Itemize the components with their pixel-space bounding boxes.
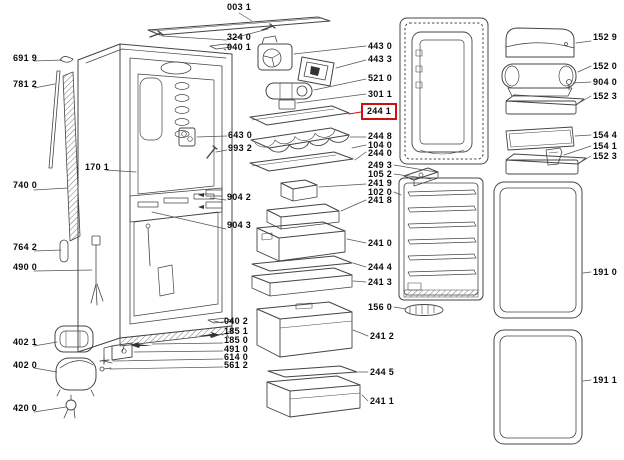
part-shelf-frame (506, 127, 574, 150)
part-label-241-2[interactable]: 241 2 (370, 332, 394, 341)
part-label-904-0[interactable]: 904 0 (593, 78, 617, 87)
part-label-152-0[interactable]: 152 0 (593, 62, 617, 71)
part-label-904-3[interactable]: 904 3 (227, 221, 251, 230)
part-compressor (56, 358, 96, 396)
part-label-040-2[interactable]: 040 2 (224, 317, 248, 326)
part-label-244-4[interactable]: 244 4 (368, 263, 392, 272)
part-label-156-0[interactable]: 156 0 (368, 303, 392, 312)
parts-diagram-drawing (0, 0, 624, 460)
part-label-244-1-highlighted[interactable]: 244 1 (361, 103, 397, 120)
part-freezer-flap (268, 366, 357, 377)
part-label-993-2[interactable]: 993 2 (228, 144, 252, 153)
part-label-561-2[interactable]: 561 2 (224, 361, 248, 370)
part-hinge-screws (100, 358, 111, 371)
part-small-tray (281, 180, 317, 201)
part-fan-unit (258, 36, 292, 70)
part-label-740-0[interactable]: 740 0 (13, 181, 37, 190)
part-label-003-1[interactable]: 003 1 (227, 3, 251, 12)
part-label-152-3-upper[interactable]: 152 3 (593, 92, 617, 101)
part-door-shelf-upper (506, 95, 584, 114)
parts-diagram-page: 003 1 324 0 040 1 691 9 781 2 170 1 740 … (0, 0, 624, 460)
part-shallow-tray (252, 268, 352, 296)
part-shelf-rails (198, 190, 222, 209)
part-screw (207, 146, 217, 158)
part-label-241-0[interactable]: 241 0 (368, 239, 392, 248)
part-glass-shelf (250, 152, 353, 171)
part-label-191-1[interactable]: 191 1 (593, 376, 617, 385)
part-label-301-1[interactable]: 301 1 (368, 90, 392, 99)
part-label-152-9[interactable]: 152 9 (593, 33, 617, 42)
part-label-643-0[interactable]: 643 0 (228, 131, 252, 140)
part-cabinet (78, 44, 232, 352)
part-label-040-1[interactable]: 040 1 (227, 43, 251, 52)
part-label-402-1[interactable]: 402 1 (13, 338, 37, 347)
part-label-781-2[interactable]: 781 2 (13, 80, 37, 89)
part-label-241-3[interactable]: 241 3 (368, 278, 392, 287)
part-door-stop (60, 240, 68, 262)
part-pin (567, 80, 572, 91)
part-door-gasket-freezer (494, 330, 582, 444)
part-side-panel (63, 72, 80, 241)
part-label-244-5[interactable]: 244 5 (370, 368, 394, 377)
part-door-shelf-lower (506, 154, 586, 174)
part-label-521-0[interactable]: 521 0 (368, 74, 392, 83)
part-label-191-0[interactable]: 191 0 (593, 268, 617, 277)
part-glass-shelf-selected (250, 106, 349, 125)
part-label-402-0[interactable]: 402 0 (13, 361, 37, 370)
part-label-170-1[interactable]: 170 1 (85, 163, 109, 172)
part-gasket-frame (298, 57, 334, 86)
part-label-443-3[interactable]: 443 3 (368, 55, 392, 64)
part-valve (64, 395, 76, 418)
part-door-hook (60, 56, 73, 62)
part-crisper-drawer (257, 222, 345, 261)
part-label-154-1[interactable]: 154 1 (593, 142, 617, 151)
part-label-420-0[interactable]: 420 0 (13, 404, 37, 413)
leader-line-selected (349, 112, 361, 114)
part-vent-grate (405, 305, 443, 316)
part-wiring-harness (91, 236, 103, 305)
part-label-241-8[interactable]: 241 8 (368, 196, 392, 205)
part-freezer-liner (399, 178, 483, 300)
part-label-691-9[interactable]: 691 9 (13, 54, 37, 63)
part-dairy-cover (506, 28, 574, 57)
part-freezer-drawer-upper (257, 302, 352, 357)
part-bottle-rack (251, 128, 349, 152)
part-label-764-2[interactable]: 764 2 (13, 243, 37, 252)
part-trim-strip (49, 71, 60, 168)
part-freezer-door (400, 18, 488, 164)
part-label-490-0[interactable]: 490 0 (13, 263, 37, 272)
part-label-443-0[interactable]: 443 0 (368, 42, 392, 51)
part-label-904-2[interactable]: 904 2 (227, 193, 251, 202)
part-label-324-0[interactable]: 324 0 (227, 33, 251, 42)
part-label-154-4[interactable]: 154 4 (593, 131, 617, 140)
part-label-244-0[interactable]: 244 0 (368, 149, 392, 158)
part-compressor-cover (55, 326, 93, 352)
part-meat-tray (267, 204, 339, 229)
part-door-gasket-fridge (494, 182, 582, 318)
part-label-152-3-lower[interactable]: 152 3 (593, 152, 617, 161)
part-label-241-1[interactable]: 241 1 (370, 397, 394, 406)
part-freezer-drawer-lower (267, 376, 360, 417)
part-lamp-housing (266, 83, 312, 109)
part-door-shelf-roller (502, 64, 576, 96)
